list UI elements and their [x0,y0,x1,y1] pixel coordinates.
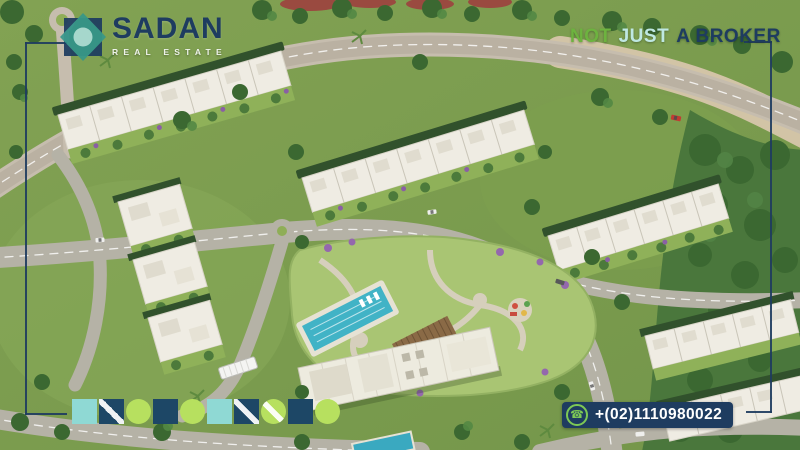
deco-shape-circle [126,399,151,424]
deco-shape-circle [180,399,205,424]
deco-shape-square [99,399,124,424]
phone-number: +(02)1110980022 [595,406,722,424]
tagline-word: JUST [619,26,670,48]
frame-line-right [770,41,772,413]
deco-shape-square [72,399,97,424]
hero-aerial-banner: SADAN REAL ESTATE NOTJUSTA BROKER ☎ +(02… [0,0,800,450]
deco-shape-circle [261,399,286,424]
playground [508,298,532,322]
frame-stub-bottom-right [746,411,772,413]
deco-shape-square [207,399,232,424]
deco-shape-row [72,399,340,424]
master-plan-aerial-view [0,0,800,450]
deco-shape-square [153,399,178,424]
tagline-word: NOT [570,26,612,48]
phone-icon: ☎ [566,404,588,426]
tagline: NOTJUSTA BROKER [570,26,781,48]
logo-wordmark: SADAN [112,13,227,45]
deco-shape-square [234,399,259,424]
frame-line-left [25,42,27,415]
sadan-logo: SADAN REAL ESTATE [60,13,227,66]
phone-badge[interactable]: ☎ +(02)1110980022 [562,402,733,428]
tagline-word: A BROKER [676,26,781,48]
deco-shape-square [288,399,313,424]
sadan-diamond-logo-icon [60,13,106,66]
logo-subtitle: REAL ESTATE [112,47,227,57]
frame-stub-bottom-left [25,413,67,415]
deco-shape-circle [315,399,340,424]
